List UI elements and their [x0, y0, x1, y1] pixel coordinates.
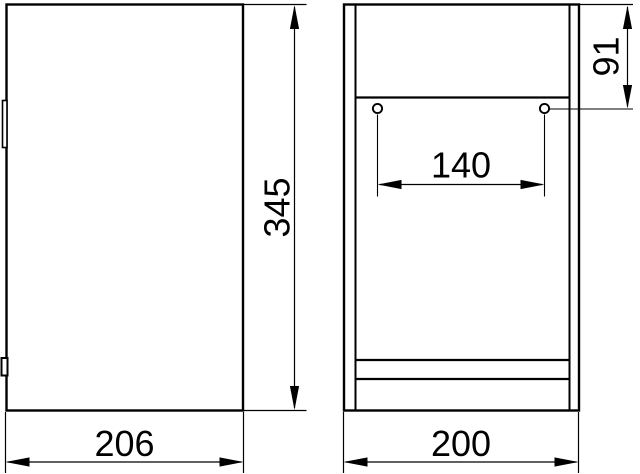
- arrow-right-icon: [555, 457, 579, 466]
- arrow-down-icon: [623, 85, 632, 109]
- drawing-canvas: 345 206 140 91: [0, 0, 640, 474]
- arrow-left-icon: [344, 457, 368, 466]
- dim-label-91: 91: [586, 36, 627, 76]
- dim-label-200: 200: [431, 423, 491, 464]
- dim-label-206: 206: [94, 423, 154, 464]
- mounting-hole-right: [540, 104, 549, 113]
- arrow-left-icon: [6, 457, 30, 466]
- dim-label-140: 140: [431, 145, 491, 186]
- dim-side-depth: 206: [6, 412, 244, 473]
- dim-label-345: 345: [257, 177, 298, 237]
- mounting-hole-left: [373, 104, 382, 113]
- side-view: [2, 5, 244, 411]
- door-hinge-lower: [2, 358, 8, 376]
- arrow-up-icon: [290, 5, 299, 29]
- arrow-right-icon: [220, 457, 244, 466]
- door-hinge-upper: [3, 101, 8, 148]
- technical-drawing: 345 206 140 91: [0, 0, 640, 474]
- arrow-up-icon: [623, 6, 632, 30]
- arrow-down-icon: [290, 386, 299, 410]
- front-view-outline: [344, 5, 579, 411]
- dim-front-width: 200: [344, 412, 579, 473]
- front-view: [344, 5, 579, 411]
- dim-side-height: 345: [243, 5, 307, 411]
- side-view-outline: [7, 5, 244, 411]
